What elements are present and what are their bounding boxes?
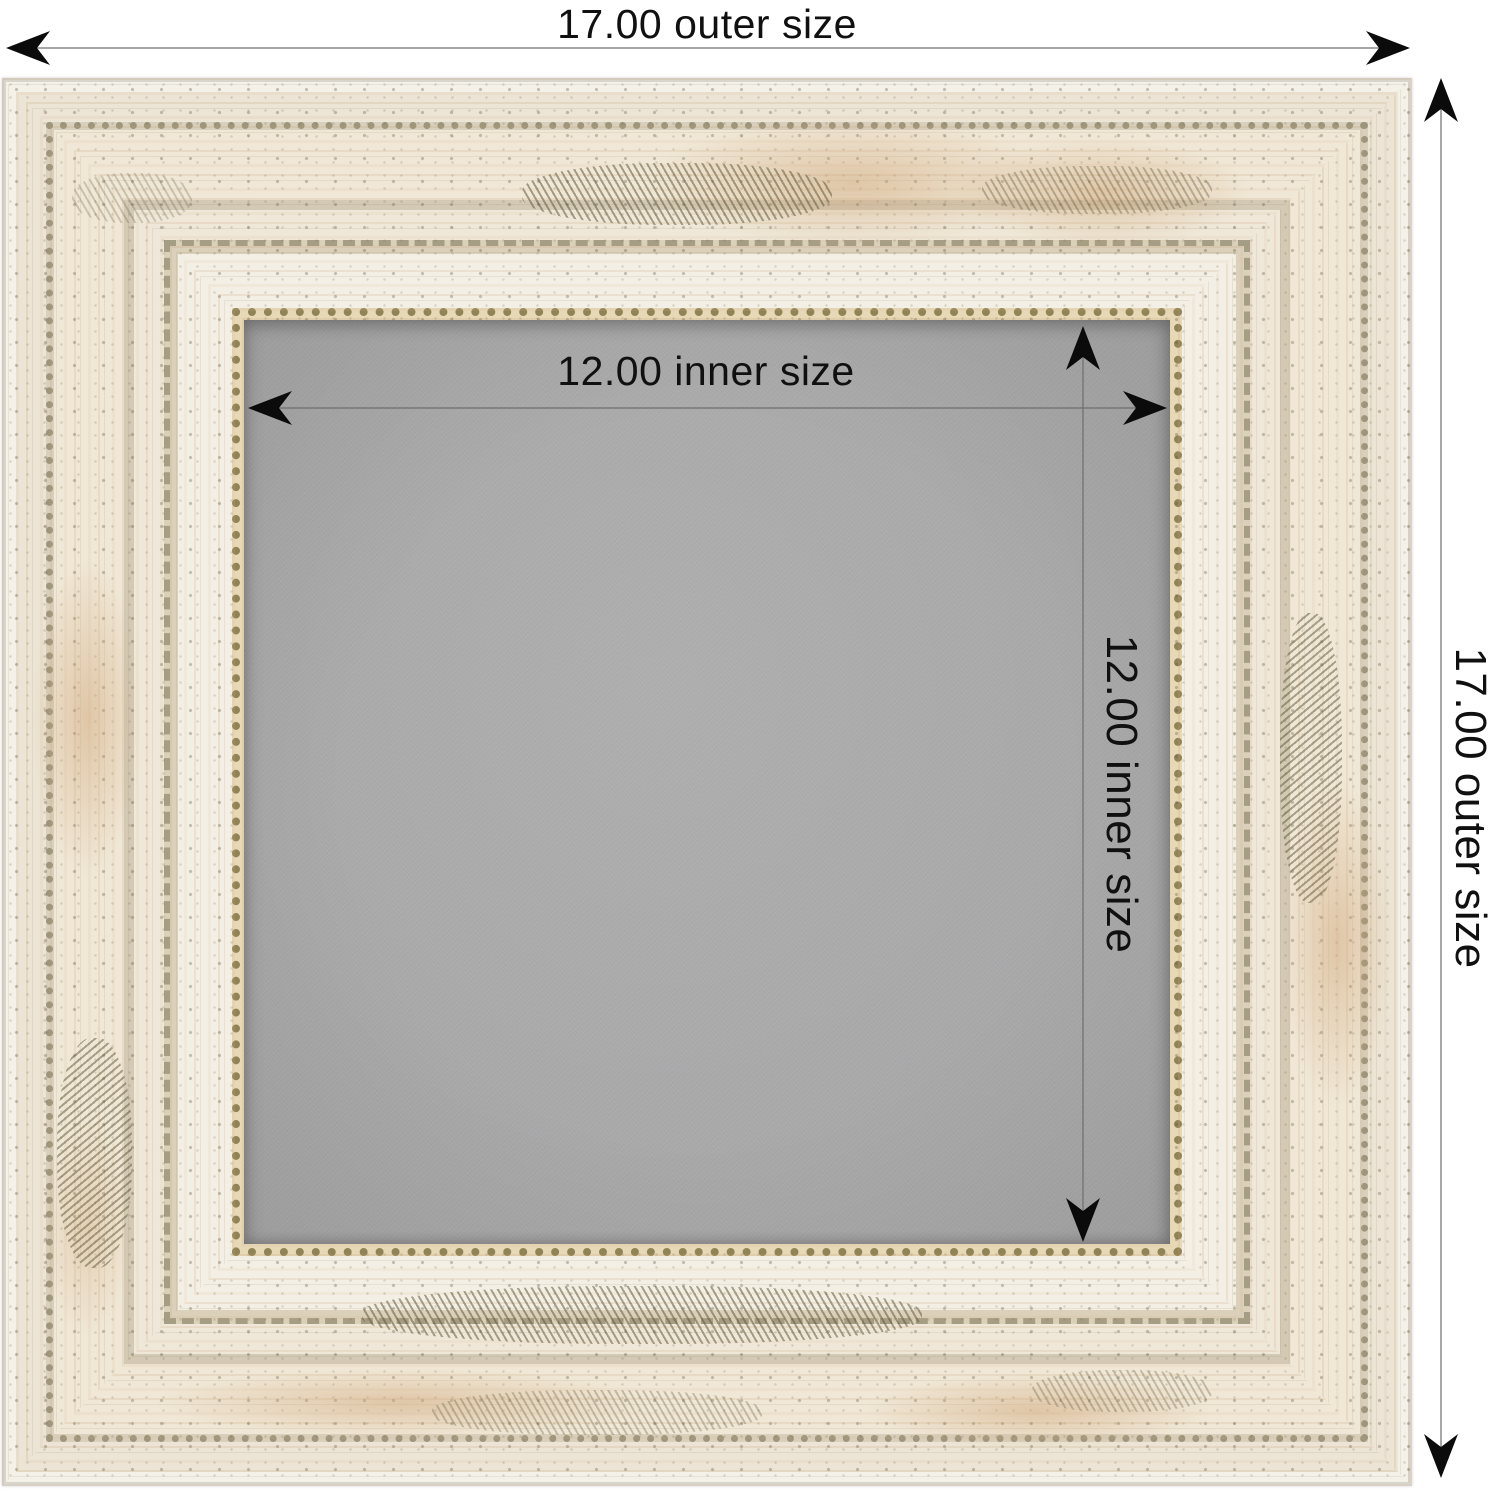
outer-height-label: 17.00 outer size — [1448, 647, 1492, 968]
outer-width-label: 17.00 outer size — [557, 4, 857, 45]
inner-height-label: 12.00 inner size — [1099, 635, 1143, 954]
frame-wide-band — [54, 130, 1360, 1434]
frame-molding-ring-1 — [6, 82, 1408, 1482]
product-dimension-image: 17.00 outer size 12.00 inner size 17.00 … — [0, 0, 1500, 1492]
arrow-left-icon — [6, 31, 50, 65]
frame-gold-lip — [232, 308, 1182, 1256]
arrow-up-icon — [1424, 78, 1458, 122]
arrow-down-icon — [1424, 1434, 1458, 1478]
frame-step-ring — [164, 240, 1250, 1324]
frame-outer-edge — [2, 78, 1412, 1486]
frame-bead-ring — [16, 92, 1398, 1472]
inner-board — [244, 320, 1170, 1244]
frame-scoop-ring — [178, 254, 1236, 1310]
arrow-right-icon — [1366, 31, 1410, 65]
picture-frame — [2, 78, 1412, 1486]
frame-ridge-ring-1 — [46, 122, 1368, 1442]
inner-width-label: 12.00 inner size — [557, 351, 854, 392]
